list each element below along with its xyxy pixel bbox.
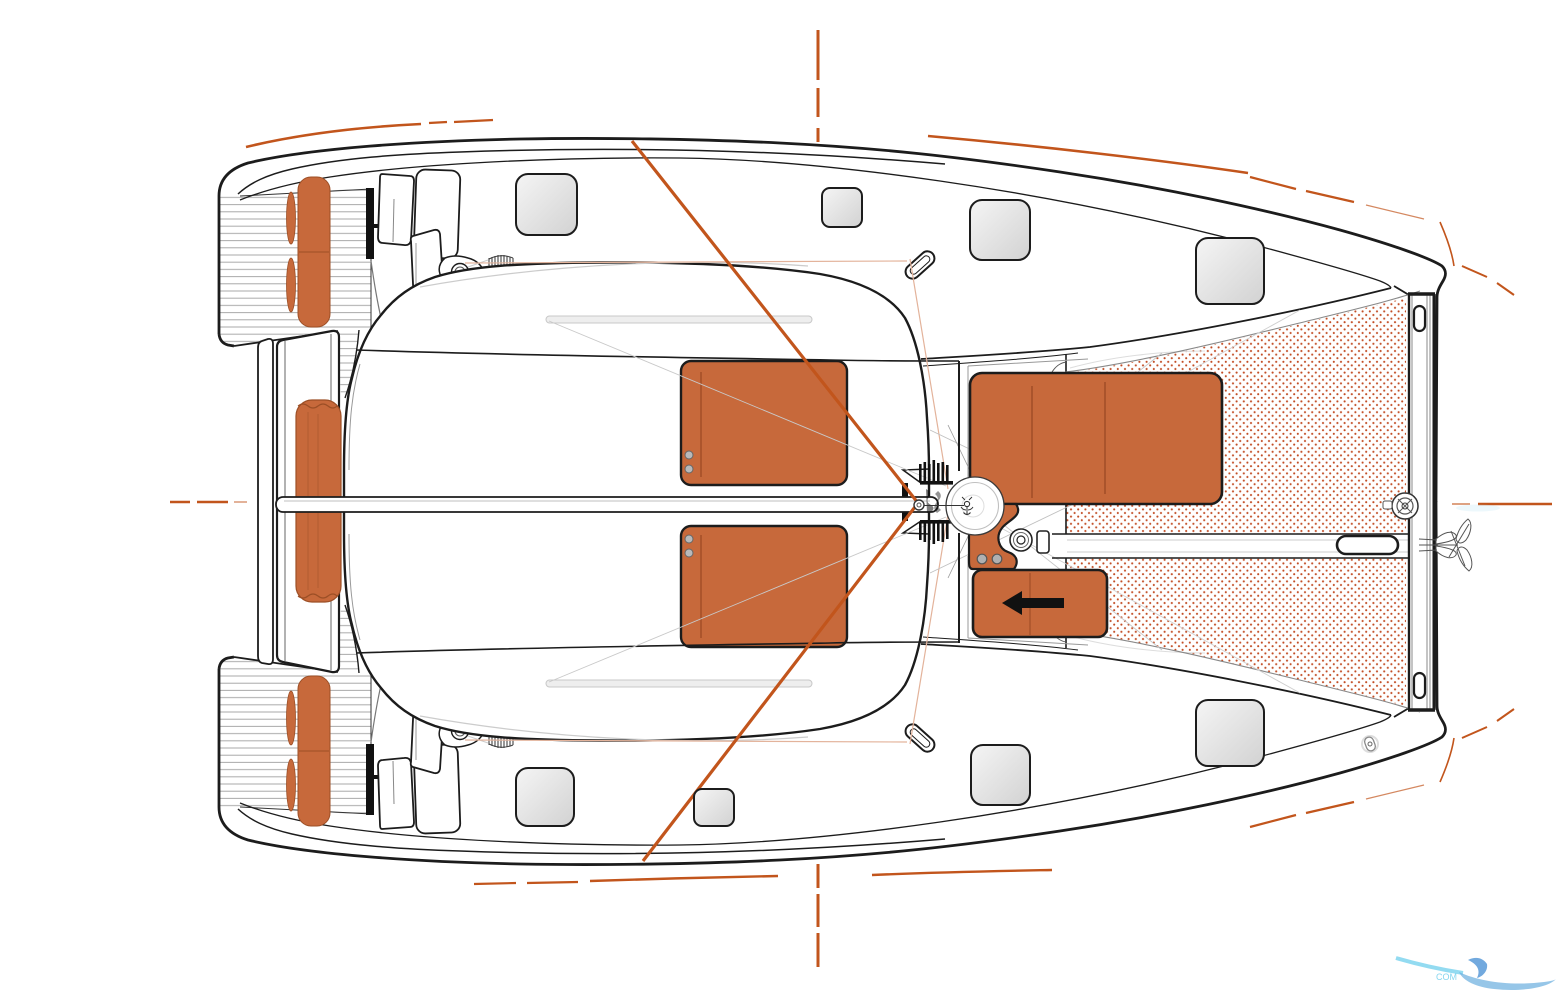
svg-text:COM: COM bbox=[1436, 972, 1457, 982]
